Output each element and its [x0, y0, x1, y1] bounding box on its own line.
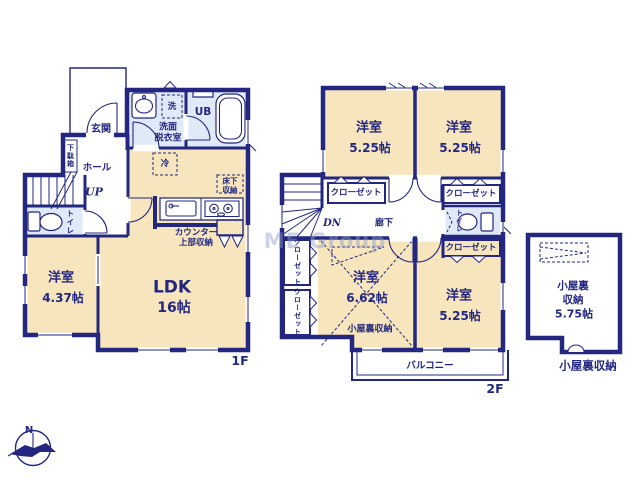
room3-name-label: 洋室 — [353, 272, 379, 285]
washroom-label-line2: 脱衣室 — [154, 135, 181, 144]
room3-size-label: 6.62帖 — [346, 292, 388, 304]
attic-hatch-icon — [568, 345, 584, 352]
attic-access-note-label: 小屋裏収納 — [347, 326, 392, 335]
toilet-2f-label: トイレ — [456, 209, 463, 233]
bedroom-tr-door-arc — [417, 178, 441, 202]
closet-br-label: クローゼット — [445, 244, 496, 253]
room2-size-label: 5.25帖 — [439, 142, 481, 154]
ldk-name-label: LDK — [153, 280, 191, 297]
balcony-label: バルコニー — [406, 361, 453, 371]
toilet-1f-door-arc — [85, 211, 107, 233]
floor1-label: 1F — [231, 355, 248, 368]
attic-caption-label: 小屋裏収納 — [559, 360, 617, 372]
stairs-down-label: DN — [323, 219, 341, 229]
bedroom-1f-name-label: 洋室 — [48, 272, 74, 285]
kitchen-counter — [160, 198, 243, 220]
underfloor-label-line2: 収納 — [223, 186, 238, 194]
washbasin-icon — [132, 93, 156, 118]
ldk-size-label: 16帖 — [157, 301, 190, 315]
closet-left1-label: クローゼット — [294, 238, 301, 286]
entrance-label: 玄関 — [91, 125, 111, 135]
compass-n-label: N — [25, 426, 33, 436]
closet-tr-label: クローゼット — [445, 190, 496, 199]
room4-name-label: 洋室 — [446, 290, 472, 303]
washroom-label-line1: 洗面 — [159, 124, 177, 133]
corridor-label: 廊下 — [375, 220, 393, 229]
vent-mark-icon — [164, 82, 176, 89]
closet-left2-label: クローゼット — [294, 288, 301, 336]
bedroom-tl-door-arc — [389, 178, 413, 202]
underfloor-label-line1: 床下 — [223, 177, 238, 185]
floorplan-image: ME Group 玄関 下駄箱 ホール UP トイレ 洗面 脱衣室 洗 UB 冷… — [0, 0, 640, 480]
washer-label: 洗 — [168, 103, 177, 112]
closet-tl-label: クローゼット — [330, 189, 381, 198]
counter-label-line2: 上部収納 — [179, 239, 213, 248]
attic-size-label: 5.75帖 — [555, 309, 593, 320]
stairs-up-label: UP — [85, 187, 103, 198]
toilet-1f-label: トイレ — [66, 209, 74, 235]
toilet-icon-1f — [28, 212, 62, 231]
unit-bath-label: UB — [195, 107, 212, 118]
floor2-label: 2F — [486, 383, 503, 396]
attic-name-label-line1: 小屋裏 — [557, 281, 589, 292]
room1-name-label: 洋室 — [356, 122, 382, 135]
counter-label-line1: カウンター — [175, 229, 218, 238]
watermark: ME Group — [264, 229, 387, 253]
bedroom-1f-size-label: 4.37帖 — [42, 292, 84, 304]
room1-size-label: 5.25帖 — [349, 142, 391, 154]
hall-label: ホール — [83, 163, 112, 173]
room4-size-label: 5.25帖 — [439, 310, 481, 322]
fridge-label: 冷 — [161, 160, 170, 169]
bedrooms-2f-top-area — [323, 88, 503, 178]
room2-name-label: 洋室 — [446, 122, 472, 135]
shoe-cabinet-label: 下駄箱 — [67, 144, 74, 168]
attic-name-label-line2: 収納 — [563, 295, 584, 306]
stairs-1f — [33, 172, 77, 209]
